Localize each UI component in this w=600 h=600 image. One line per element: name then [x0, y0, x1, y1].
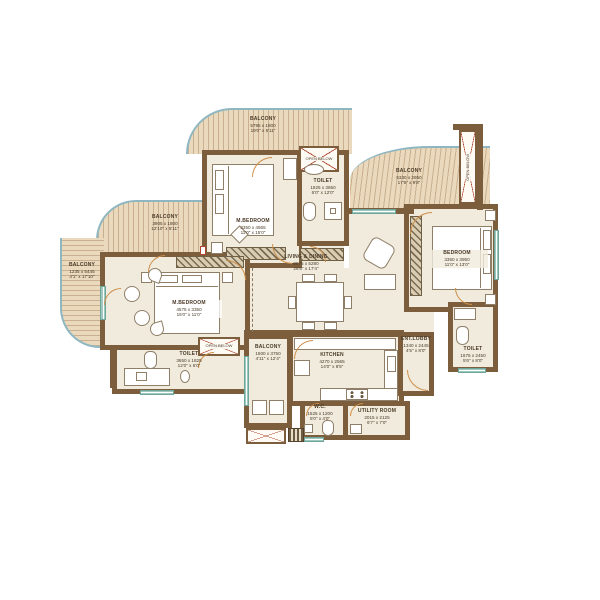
wall-living-left	[245, 258, 250, 334]
dining-chair	[288, 296, 296, 309]
sliding-door-living-balcony	[352, 209, 396, 214]
window-toilet-right	[458, 368, 486, 373]
dining-table	[296, 282, 344, 322]
bed-line	[228, 166, 229, 234]
bidet	[180, 370, 190, 383]
balcony-left-side-deck	[60, 238, 104, 348]
washing-machine	[269, 400, 284, 415]
pouf	[124, 286, 140, 302]
window-balcony-bottom	[244, 356, 249, 406]
vent-grill	[288, 428, 304, 442]
dresser	[283, 158, 297, 180]
sink	[387, 356, 396, 372]
hob	[346, 389, 368, 400]
side-table	[211, 242, 223, 254]
washbasin	[304, 164, 324, 175]
basin	[136, 372, 147, 381]
washbasin-counter	[454, 308, 476, 320]
dining-chair	[324, 322, 337, 330]
open-below-label: OPEN BELOW	[205, 344, 234, 348]
open-below-label: OPEN BELOW	[465, 154, 471, 181]
bed-line	[156, 286, 218, 287]
dining-chair	[302, 274, 315, 282]
window-bedroom-right	[494, 230, 499, 280]
washing-machine	[252, 400, 267, 415]
open-below-box-middle: OPEN BELOW	[198, 337, 240, 356]
sofa	[364, 274, 396, 290]
window-wc	[304, 437, 324, 442]
dining-chair	[324, 274, 337, 282]
utility-fixture	[350, 424, 362, 434]
lobby-corridor	[404, 312, 434, 332]
basin	[304, 424, 313, 433]
window-toilet-left	[140, 390, 174, 395]
washbasin-counter	[124, 368, 170, 386]
pillow	[483, 230, 491, 250]
wall-shaft-right	[477, 128, 483, 210]
wall-marker	[200, 246, 206, 255]
floor-plan: OPEN BELOW OPEN BELOW OPEN BELOW	[0, 0, 600, 600]
drain	[330, 208, 336, 214]
dining-chair	[302, 322, 315, 330]
crossed-ledge-bottom	[246, 428, 286, 444]
pillow	[215, 170, 224, 190]
wall-living-bottom	[244, 330, 404, 336]
dashed-partition	[252, 268, 253, 332]
pillow	[215, 194, 224, 214]
pillow	[182, 275, 202, 283]
pouf	[134, 310, 150, 326]
wc-pan	[144, 351, 157, 369]
side-table	[485, 294, 496, 305]
bed-line	[480, 228, 481, 288]
wc-pan	[456, 326, 469, 345]
side-table	[485, 210, 496, 221]
fridge	[294, 360, 310, 376]
dining-chair	[344, 296, 352, 309]
open-below-shaft-right: OPEN BELOW	[459, 130, 477, 204]
wc-pan	[303, 202, 316, 221]
pillow	[483, 254, 491, 274]
open-below-label: OPEN BELOW	[305, 157, 334, 161]
wc-pan	[322, 420, 334, 436]
